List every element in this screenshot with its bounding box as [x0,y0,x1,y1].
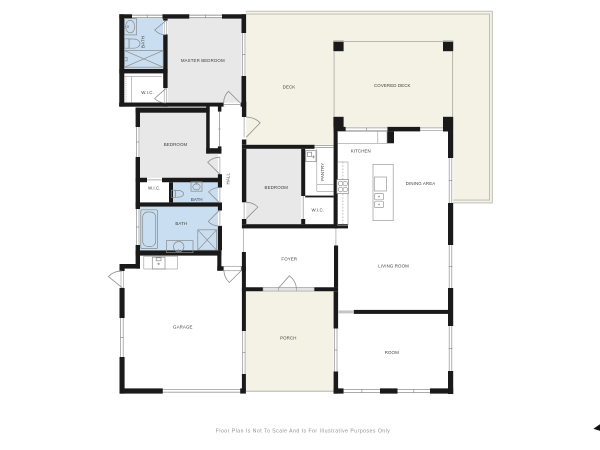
svg-text:W.I.C.: W.I.C. [311,208,324,213]
svg-text:BEDROOM: BEDROOM [265,185,289,190]
svg-text:BATH: BATH [175,221,187,226]
svg-text:ROOM: ROOM [385,350,399,355]
svg-text:KITCHEN: KITCHEN [351,149,371,154]
svg-text:BATH: BATH [191,197,203,202]
svg-text:BEDROOM: BEDROOM [164,142,188,147]
svg-text:BATH: BATH [141,36,146,48]
svg-text:HALL: HALL [225,173,230,185]
svg-text:DECK: DECK [283,85,296,90]
svg-text:GARAGE: GARAGE [173,325,193,330]
svg-text:W.I.C.: W.I.C. [148,186,161,191]
svg-text:FOYER: FOYER [281,256,297,261]
svg-text:LIVING ROOM: LIVING ROOM [378,264,409,269]
svg-text:COVERED DECK: COVERED DECK [374,83,411,88]
svg-text:DINING AREA: DINING AREA [406,181,436,186]
svg-text:W.I.C.: W.I.C. [141,90,154,95]
svg-text:PORCH: PORCH [280,336,296,341]
svg-text:MASTER BEDROOM: MASTER BEDROOM [181,58,225,63]
svg-text:PANTRY: PANTRY [320,163,325,181]
svg-text:Floor Plan Is Not To Scale And: Floor Plan Is Not To Scale And Is For Il… [216,428,391,434]
